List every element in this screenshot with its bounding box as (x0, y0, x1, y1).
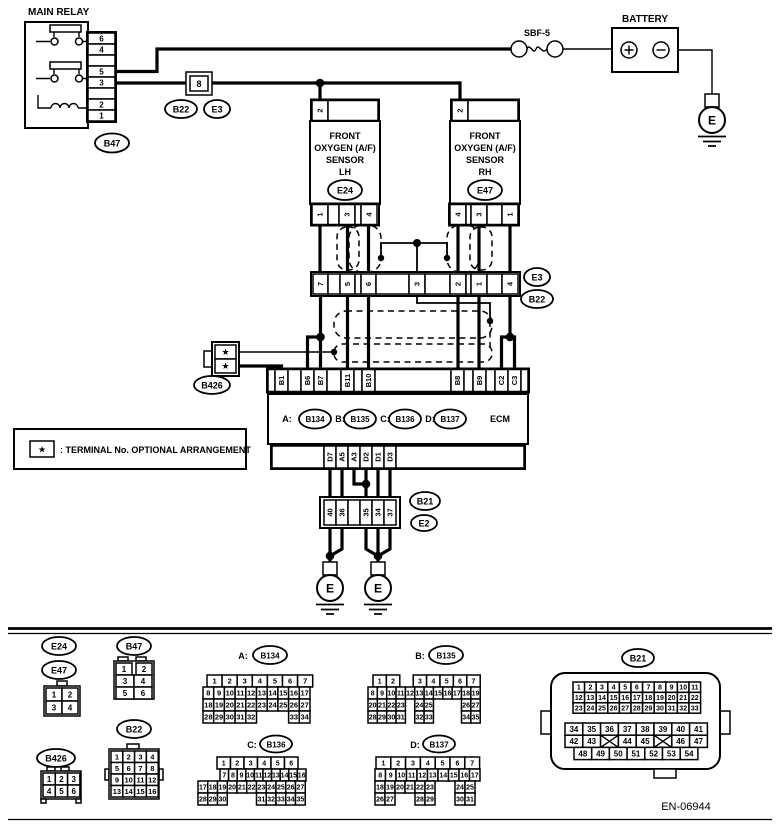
sensor-lh-text: FRONT (330, 131, 361, 141)
sensor-lh-text: LH (339, 167, 351, 177)
pin-label: 23 (426, 785, 434, 792)
pin-label: 25 (277, 785, 285, 792)
pin-cell (288, 370, 301, 392)
pin-label: 1 (99, 111, 104, 120)
pin-label: 6 (288, 677, 292, 686)
pin-label: 2 (228, 677, 232, 686)
sensor-lh-text: OXYGEN (A/F) (314, 143, 376, 153)
ecm-b-tag: B135 (350, 415, 370, 424)
pin-label: 25 (425, 703, 433, 710)
pin-label: 49 (596, 749, 605, 758)
pin-label: 20 (369, 703, 377, 710)
pin-label: 10 (226, 689, 234, 698)
pin-label: 51 (631, 749, 640, 758)
b21-e2-row: 4036353437 B21 E2 (320, 492, 440, 531)
main-relay: MAIN RELAY 645321 B47 (25, 7, 129, 153)
pin-label: 29 (426, 797, 434, 804)
pin-label: 4 (262, 761, 266, 768)
pin-label: 52 (649, 749, 658, 758)
pin-label: 7 (646, 685, 650, 692)
pinout-tag-b134: B134 (260, 652, 280, 661)
pin-cell (268, 370, 275, 392)
pin-label: 16 (460, 773, 468, 780)
pin-label: 12 (247, 689, 255, 698)
pin-label: 1 (378, 679, 382, 686)
pin-label: 31 (236, 713, 244, 722)
pin-label: 12 (263, 773, 271, 780)
pin-label: 23 (397, 703, 405, 710)
pin-cell (521, 370, 528, 392)
pin-label: 5 (273, 677, 277, 686)
battery-minus-terminal (653, 42, 669, 58)
ground-label: E (374, 582, 382, 596)
pin-label: 21 (679, 695, 687, 702)
pin-cell (354, 370, 362, 392)
pin-label: 5 (445, 679, 449, 686)
pin-label: 15 (610, 695, 618, 702)
pin-label: 8 (206, 689, 210, 698)
pin-label: 3 (243, 677, 247, 686)
mid-connector-tag-e3: E3 (531, 273, 542, 283)
pin-label: 28 (204, 713, 212, 722)
pin-label: 31 (257, 797, 265, 804)
pin-label: 8 (658, 685, 662, 692)
pin-label: 24 (267, 785, 275, 792)
pin-label: D1 (374, 452, 383, 462)
pin-label: 41 (694, 725, 703, 734)
pinout-tag-b426: B426 (45, 754, 67, 764)
pin-label: 16 (148, 787, 156, 796)
pin-label: 7 (472, 679, 476, 686)
pin-label: 4 (612, 685, 616, 692)
pin-cell (88, 88, 115, 99)
pin-label: 33 (290, 713, 298, 722)
pinout-label-d: D: (410, 740, 420, 750)
pin-label: 38 (641, 725, 650, 734)
sensor-rh-text: RH (479, 167, 492, 177)
fuse-label: SBF-5 (524, 28, 550, 38)
pin-label: 24 (416, 703, 424, 710)
pin-label: 31 (397, 715, 405, 722)
sensor-rh-top-pins: 2 (452, 101, 518, 121)
pin-label: 3 (123, 677, 128, 686)
pinout-tag-b136: B136 (266, 741, 286, 750)
pin-label: B11 (343, 374, 352, 387)
pin-label: 29 (209, 797, 217, 804)
sensor-lh: 2 FRONT OXYGEN (A/F) SENSOR LH E24 134 (310, 100, 380, 226)
pin-cell (425, 274, 450, 294)
pin-label: 31 (668, 706, 676, 713)
pin-label: B9 (475, 376, 484, 386)
pin-label: 2 (142, 665, 147, 674)
ecm-c-tag: B136 (395, 415, 415, 424)
pinout-e24-e47: E24 E47 1234 (42, 637, 80, 716)
pin-label: B10 (364, 374, 373, 388)
pin-label: 25 (598, 706, 606, 713)
pin-label: 4 (99, 45, 104, 54)
pin-cell (486, 370, 495, 392)
pin-label: 16 (444, 691, 452, 698)
pin-label: 26 (376, 797, 384, 804)
ecm-name: ECM (490, 414, 510, 424)
pin-label: 14 (439, 773, 447, 780)
pin-label: 4 (68, 703, 73, 712)
main-relay-pin-strip: 645321 (88, 33, 115, 121)
pin-label: 35 (472, 715, 480, 722)
pin-cell (487, 205, 502, 225)
pin-label: 33 (425, 715, 433, 722)
sensor-rh-bottom-pins: 431 (450, 205, 518, 225)
ecm-a-label: A: (282, 414, 292, 424)
pin-label: 1 (577, 685, 581, 692)
ground-label: E (708, 114, 716, 128)
pin-label: 43 (587, 737, 596, 746)
pin-label: 19 (656, 695, 664, 702)
ground-label: E (326, 582, 334, 596)
pin-label: 22 (387, 703, 395, 710)
pin-label: D2 (362, 452, 371, 462)
b426-connector: ★★ B426 (194, 342, 239, 394)
pin-label: 18 (209, 785, 217, 792)
pin-label: 16 (621, 695, 629, 702)
pin-label: 6 (127, 764, 131, 773)
pin-cell (88, 55, 115, 66)
pin-label: 17 (453, 691, 461, 698)
pin-label: 18 (204, 701, 212, 710)
pin-label: 45 (641, 737, 650, 746)
pin-label: 30 (456, 797, 464, 804)
pin-label: 23 (575, 706, 583, 713)
pin-label: 11 (397, 691, 405, 698)
pin-label: 3 (343, 212, 352, 216)
pin-cell (328, 205, 339, 225)
pin-label: 7 (470, 761, 474, 768)
pin-label: 20 (668, 695, 676, 702)
pin-label: 15 (434, 691, 442, 698)
pin-label: 12 (406, 691, 414, 698)
pin-label: 15 (289, 773, 297, 780)
pin-label: 34 (374, 508, 383, 517)
pin-label: 7 (222, 773, 226, 780)
pin-label: 34 (287, 797, 295, 804)
pin-label: 3 (138, 752, 142, 761)
main-relay-title: MAIN RELAY (28, 7, 90, 18)
pinout-b134: A: B134 12345678910111213141516171819202… (203, 646, 313, 723)
pin-label: 24 (456, 785, 464, 792)
sensor-lh-top-pins: 2 (312, 101, 378, 121)
pin-label: 7 (316, 282, 325, 286)
pin-label: 47 (694, 737, 703, 746)
pin-label: 3 (475, 212, 484, 216)
pin-label: 6 (141, 689, 146, 698)
harness-wires (115, 49, 712, 562)
pin-label: 34 (462, 715, 470, 722)
pin-cell (328, 274, 340, 294)
pin-label: 6 (99, 34, 104, 43)
pin-cell (348, 500, 360, 525)
ecm-d-tag: B137 (440, 415, 460, 424)
pin-label: 21 (378, 703, 386, 710)
pin-label: 13 (272, 773, 280, 780)
pinout-b47: B47 123456 (114, 637, 154, 699)
ground-right: E (364, 562, 392, 614)
pin-label: 6 (635, 685, 639, 692)
inline-connector-8-label: 8 (196, 79, 201, 89)
pin-label: 12 (575, 695, 583, 702)
pin-label: 6 (455, 761, 459, 768)
pin-label: 9 (115, 775, 119, 784)
pin-label: 2 (454, 282, 463, 286)
pin-label: 53 (667, 749, 676, 758)
pin-label: 11 (255, 773, 263, 780)
pinout-label-c: C: (247, 740, 257, 750)
pin-label: 27 (386, 797, 394, 804)
pin-label: 15 (450, 773, 458, 780)
pin-label: 17 (300, 689, 308, 698)
pin-cell (328, 101, 378, 121)
pin-label: 21 (406, 785, 414, 792)
legend-text: : TERMINAL No. OPTIONAL ARRANGEMENT (60, 445, 251, 455)
pin-label: 13 (258, 689, 266, 698)
doc-number: EN-06944 (661, 801, 711, 813)
pinout-b426: B426 123456 (37, 749, 81, 803)
pin-label: 17 (471, 773, 479, 780)
pin-label: 14 (268, 689, 277, 698)
e2-row-tag: E2 (418, 519, 429, 529)
pin-label: 8 (378, 773, 382, 780)
pin-label: 1 (122, 665, 127, 674)
pin-label: 19 (472, 691, 480, 698)
pin-label: 11 (408, 773, 416, 780)
pin-label: 5 (99, 67, 104, 76)
pinout-tag-b22: B22 (126, 725, 143, 735)
pinout-tag-b21: B21 (630, 654, 647, 664)
pin-label: 3 (72, 775, 77, 784)
pin-label: 9 (380, 691, 384, 698)
pinout-b22: B22 12345678910111213141516 (105, 720, 163, 799)
pin-label: 14 (125, 787, 134, 796)
pinout-b135: B: B135 12345678910111213141516171819202… (368, 646, 480, 723)
pin-label: D7 (326, 452, 335, 462)
pin-label: ★ (221, 347, 229, 357)
pin-label: 28 (369, 715, 377, 722)
pin-cell (487, 274, 502, 294)
mid-connector-pins: 7563214 (313, 274, 518, 294)
fuse-sbf5: SBF-5 (511, 28, 563, 57)
pin-label: 6 (289, 761, 293, 768)
ecm-a-tag: B134 (305, 415, 325, 424)
pin-label: 35 (587, 725, 596, 734)
battery-plus-terminal (621, 42, 637, 58)
pin-cell (464, 370, 473, 392)
pin-label: 9 (217, 689, 221, 698)
pin-label: 22 (248, 785, 256, 792)
battery-title: BATTERY (622, 14, 668, 25)
pin-label: 5 (276, 761, 280, 768)
ecm-top-pins: B1B6B7B11B10B8B9C2C3 (268, 370, 528, 392)
pin-label: 16 (290, 689, 298, 698)
pin-label: 24 (268, 701, 277, 710)
pin-label: 33 (277, 797, 285, 804)
pin-label: 28 (416, 797, 424, 804)
section-divider (8, 629, 772, 634)
pin-label: 2 (235, 761, 239, 768)
pin-cell (468, 101, 518, 121)
pinout-tag-e47: E47 (51, 666, 67, 676)
pin-label: 33 (691, 706, 699, 713)
pin-label: 2 (456, 108, 465, 112)
pin-label: 13 (113, 787, 121, 796)
pin-label: 22 (416, 785, 424, 792)
pin-cell (272, 446, 324, 468)
ecm: B1B6B7B11B10B8B9C2C3 A: B134 B: B135 C: … (267, 369, 529, 470)
pin-label: 2 (391, 679, 395, 686)
pin-label: 6 (72, 787, 77, 796)
pin-label: A3 (350, 452, 359, 462)
pin-label: 16 (298, 773, 306, 780)
sensor-lh-text: SENSOR (326, 155, 365, 165)
sensor-rh-tag: E47 (477, 186, 493, 196)
sensor-lh-bottom-pins: 134 (312, 205, 377, 225)
pin-label: 18 (462, 691, 470, 698)
pin-label: 1 (506, 212, 515, 216)
pin-label: 3 (411, 761, 415, 768)
pin-label: 8 (231, 773, 235, 780)
pin-label: 5 (441, 761, 445, 768)
pin-label: D3 (386, 452, 395, 462)
pin-label: 17 (199, 785, 207, 792)
sensor-rh-text: OXYGEN (A/F) (454, 143, 516, 153)
pin-label: 36 (338, 508, 347, 516)
pin-label: 2 (68, 690, 73, 699)
pin-label: 29 (645, 706, 653, 713)
pin-label: 14 (281, 773, 289, 780)
pin-label: 39 (658, 725, 667, 734)
pin-label: 9 (670, 685, 674, 692)
ecm-bottom-pins: D7A5A3D2D1D3 (272, 446, 524, 468)
pin-label: 1 (475, 282, 484, 286)
sensor-rh-text: SENSOR (466, 155, 505, 165)
inline-connector-8: 8 B22 E3 (165, 72, 230, 118)
pin-label: 40 (676, 725, 685, 734)
pin-label: 6 (458, 679, 462, 686)
pin-label: A5 (338, 452, 347, 462)
pin-label: 9 (240, 773, 244, 780)
pin-label: 31 (466, 797, 474, 804)
pin-label: 26 (610, 706, 618, 713)
pin-label: 3 (418, 679, 422, 686)
pin-label: 34 (300, 713, 309, 722)
ground-left: E (316, 562, 344, 614)
pin-label: ★ (221, 361, 229, 371)
pin-label: B8 (453, 376, 462, 386)
wiring-diagram-page: MAIN RELAY 645321 B47 SBF-5 BATTERY (0, 0, 780, 835)
pin-label: 54 (685, 749, 694, 758)
pin-label: 10 (387, 691, 395, 698)
pin-label: 10 (679, 685, 687, 692)
pin-label: 22 (691, 695, 699, 702)
pin-label: 32 (416, 715, 424, 722)
pin-label: 37 (623, 725, 632, 734)
ground-battery: E (698, 94, 726, 146)
pin-label: 27 (296, 785, 304, 792)
pin-label: 19 (218, 785, 226, 792)
pin-label: 14 (598, 695, 606, 702)
pin-label: 30 (387, 715, 395, 722)
pin-label: 4 (431, 679, 435, 686)
pin-label: 30 (656, 706, 664, 713)
pin-label: 9 (389, 773, 393, 780)
pin-cell (327, 370, 341, 392)
pin-label: B6 (303, 376, 312, 386)
junction-dot (316, 79, 325, 88)
pin-cell (376, 274, 409, 294)
pin-label: 15 (136, 787, 144, 796)
pin-cell (375, 370, 451, 392)
pin-label: 27 (472, 703, 480, 710)
pin-label: 6 (364, 282, 373, 286)
pin-label: 8 (150, 764, 154, 773)
wiring-diagram: MAIN RELAY 645321 B47 SBF-5 BATTERY (0, 0, 780, 835)
pin-label: 25 (466, 785, 474, 792)
pin-label: 27 (300, 701, 308, 710)
pin-label: 13 (416, 691, 424, 698)
pin-label: 10 (397, 773, 405, 780)
pin-label: 3 (600, 685, 604, 692)
pin-label: 50 (614, 749, 623, 758)
battery: BATTERY (612, 14, 678, 72)
pin-label: 19 (386, 785, 394, 792)
pin-label: 2 (316, 108, 325, 112)
pin-label: 26 (290, 701, 298, 710)
pin-label: 2 (396, 761, 400, 768)
pin-label: 37 (386, 508, 395, 516)
main-relay-tag: B47 (104, 139, 121, 149)
pin-label: 4 (141, 677, 146, 686)
pin-cell (396, 446, 524, 468)
pin-label: 32 (679, 706, 687, 713)
sensor-rh: 2 FRONT OXYGEN (A/F) SENSOR RH E47 431 (449, 100, 520, 226)
inline-connector-tag-e3: E3 (211, 105, 222, 115)
pin-label: 23 (258, 701, 266, 710)
pin-label: 18 (645, 695, 653, 702)
pin-label: 25 (279, 701, 287, 710)
pin-label: 34 (569, 725, 578, 734)
pin-label: 2 (99, 100, 104, 109)
pin-label: 28 (633, 706, 641, 713)
pin-label: 21 (238, 785, 246, 792)
pin-label: 1 (381, 761, 385, 768)
sensor-lh-tag: E24 (337, 186, 353, 196)
pin-label: 7 (138, 764, 142, 773)
pin-label: 35 (362, 508, 371, 516)
pin-label: 1 (316, 212, 325, 216)
pin-label: 46 (676, 737, 685, 746)
legend: ★ : TERMINAL No. OPTIONAL ARRANGEMENT (14, 429, 251, 469)
pin-label: 1 (222, 761, 226, 768)
pin-label: 27 (621, 706, 629, 713)
pin-label: 3 (249, 761, 253, 768)
pin-label: 44 (623, 737, 632, 746)
pin-label: 2 (127, 752, 131, 761)
inline-connector-tag-b22: B22 (173, 105, 190, 115)
pinout-tag-e24: E24 (51, 642, 67, 652)
pin-label: 1 (115, 752, 119, 761)
pin-label: 11 (236, 689, 244, 698)
pin-label: 5 (343, 282, 352, 286)
pin-label: B1 (277, 376, 286, 386)
pinout-label-b: B: (415, 651, 425, 661)
